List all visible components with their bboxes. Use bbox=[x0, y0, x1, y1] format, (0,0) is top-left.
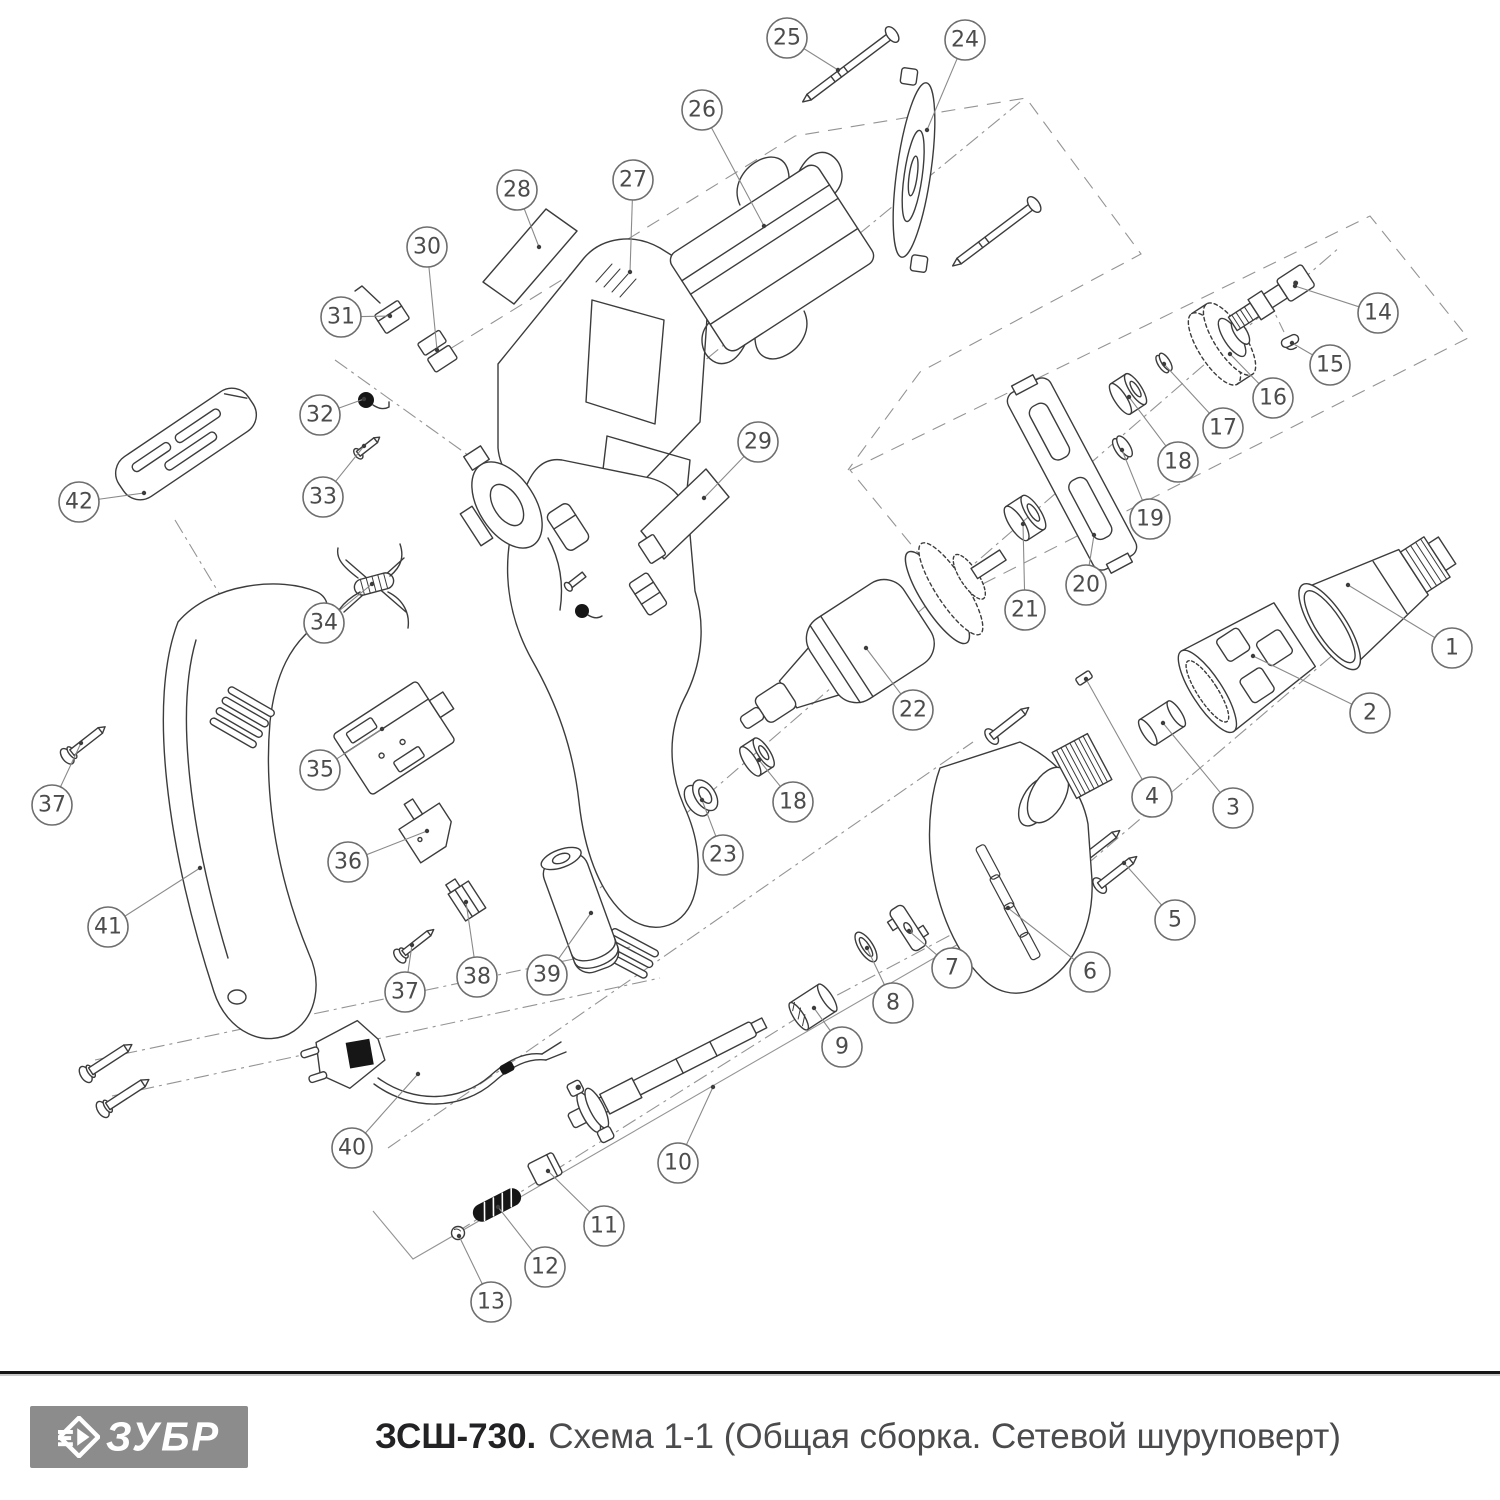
svg-text:16: 16 bbox=[1259, 386, 1287, 411]
svg-text:18: 18 bbox=[779, 790, 807, 815]
svg-text:7: 7 bbox=[945, 956, 959, 981]
svg-text:35: 35 bbox=[306, 758, 334, 783]
svg-text:34: 34 bbox=[310, 611, 338, 636]
svg-text:36: 36 bbox=[334, 850, 362, 875]
zubr-diamond-icon bbox=[58, 1416, 100, 1458]
callout-16-15: 16 bbox=[1228, 352, 1293, 418]
callout-15-14: 15 bbox=[1290, 341, 1350, 385]
exploded-diagram: 1234567891011121314151617181920212218232… bbox=[0, 0, 1500, 1500]
callout-10-9: 10 bbox=[658, 1085, 715, 1183]
callout-3-2: 3 bbox=[1161, 721, 1253, 828]
callout-37-37: 37 bbox=[32, 741, 83, 825]
svg-text:33: 33 bbox=[309, 485, 337, 510]
svg-text:37: 37 bbox=[391, 980, 419, 1005]
footer: ЗУБР ЗСШ-730. Схема 1-1 (Общая сборка. С… bbox=[0, 1376, 1500, 1500]
svg-text:6: 6 bbox=[1083, 960, 1097, 985]
part-output-shaft bbox=[1226, 264, 1316, 335]
parts-artwork bbox=[58, 24, 1475, 1239]
brand-logo: ЗУБР bbox=[30, 1406, 248, 1468]
svg-text:12: 12 bbox=[531, 1255, 559, 1280]
part-screw-37a bbox=[58, 720, 111, 767]
svg-text:2: 2 bbox=[1363, 701, 1377, 726]
part-spindle bbox=[555, 993, 779, 1152]
part-handle-cover bbox=[163, 584, 327, 1039]
callout-12-11: 12 bbox=[496, 1205, 565, 1287]
part-armature bbox=[713, 510, 1032, 769]
sheet-title: ЗСШ-730. Схема 1-1 (Общая сборка. Сетево… bbox=[375, 1406, 1341, 1468]
svg-text:27: 27 bbox=[619, 168, 647, 193]
svg-text:18: 18 bbox=[1164, 450, 1192, 475]
svg-text:23: 23 bbox=[709, 843, 737, 868]
svg-text:20: 20 bbox=[1072, 573, 1100, 598]
svg-text:42: 42 bbox=[65, 490, 93, 515]
callout-9-8: 9 bbox=[812, 1006, 862, 1067]
svg-text:28: 28 bbox=[503, 178, 531, 203]
part-screw-25b bbox=[947, 194, 1043, 273]
svg-text:4: 4 bbox=[1145, 785, 1159, 810]
svg-text:22: 22 bbox=[899, 698, 927, 723]
callout-14-13: 14 bbox=[1293, 284, 1398, 333]
svg-text:37: 37 bbox=[38, 793, 66, 818]
part-screw-25a bbox=[797, 24, 901, 109]
callout-41-42: 41 bbox=[88, 866, 202, 947]
part-bearing-18b bbox=[736, 735, 778, 779]
svg-text:25: 25 bbox=[773, 26, 801, 51]
part-washer-19 bbox=[1110, 434, 1136, 462]
svg-text:8: 8 bbox=[886, 991, 900, 1016]
callout-18-17: 18 bbox=[1127, 395, 1198, 482]
part-power-cord bbox=[296, 1016, 566, 1104]
svg-text:15: 15 bbox=[1316, 353, 1344, 378]
callout-5-4: 5 bbox=[1122, 861, 1195, 940]
callout-18-22: 18 bbox=[757, 758, 813, 822]
svg-text:1: 1 bbox=[1445, 636, 1459, 661]
part-bearing-21 bbox=[1000, 492, 1050, 544]
part-handle-screws bbox=[77, 1037, 154, 1120]
part-spring-12 bbox=[470, 1185, 525, 1225]
svg-text:40: 40 bbox=[338, 1136, 366, 1161]
part-pin-4 bbox=[1075, 670, 1093, 685]
svg-text:11: 11 bbox=[590, 1214, 618, 1239]
part-wire-tie bbox=[334, 544, 409, 628]
part-screw-33 bbox=[352, 432, 383, 460]
callout-4-3: 4 bbox=[1084, 677, 1172, 817]
svg-text:39: 39 bbox=[533, 963, 561, 988]
part-bearing-18a bbox=[1106, 371, 1151, 418]
part-clutch-sleeve bbox=[1169, 594, 1321, 739]
svg-text:41: 41 bbox=[94, 915, 122, 940]
part-clamp-38 bbox=[443, 873, 485, 920]
svg-text:31: 31 bbox=[327, 305, 355, 330]
svg-text:26: 26 bbox=[688, 98, 716, 123]
svg-text:17: 17 bbox=[1209, 416, 1237, 441]
svg-text:10: 10 bbox=[664, 1151, 692, 1176]
part-bracket-36 bbox=[389, 788, 461, 863]
svg-text:13: 13 bbox=[477, 1290, 505, 1315]
part-block-31 bbox=[355, 286, 410, 334]
part-brush-plate bbox=[874, 67, 953, 272]
svg-text:38: 38 bbox=[463, 965, 491, 990]
svg-text:5: 5 bbox=[1168, 908, 1182, 933]
svg-text:9: 9 bbox=[835, 1035, 849, 1060]
svg-text:19: 19 bbox=[1136, 507, 1164, 532]
callout-26-26: 26 bbox=[682, 90, 766, 228]
part-belt-clip bbox=[108, 380, 264, 507]
schematic-page: 1234567891011121314151617181920212218232… bbox=[0, 0, 1500, 1500]
callout-33-33: 33 bbox=[303, 444, 366, 517]
svg-text:24: 24 bbox=[951, 28, 979, 53]
svg-text:14: 14 bbox=[1364, 301, 1392, 326]
callout-29-29: 29 bbox=[702, 422, 778, 500]
sheet-subtitle: Схема 1-1 (Общая сборка. Сетевой шурупов… bbox=[548, 1417, 1341, 1457]
svg-text:30: 30 bbox=[413, 235, 441, 260]
part-screw-37b bbox=[391, 923, 438, 965]
part-switch bbox=[332, 672, 468, 796]
callout-32-32: 32 bbox=[300, 395, 366, 435]
brand-name: ЗУБР bbox=[106, 1417, 220, 1458]
callout-11-10: 11 bbox=[546, 1169, 624, 1246]
callout-25-25: 25 bbox=[767, 18, 840, 72]
svg-text:3: 3 bbox=[1226, 796, 1240, 821]
group-boundary-gear bbox=[850, 216, 1468, 598]
model-number: ЗСШ-730. bbox=[375, 1417, 536, 1457]
callout-13-12: 13 bbox=[457, 1234, 511, 1322]
callout-8-7: 8 bbox=[865, 946, 913, 1023]
svg-text:29: 29 bbox=[744, 430, 772, 455]
part-plate-7 bbox=[883, 900, 933, 956]
svg-text:32: 32 bbox=[306, 403, 334, 428]
svg-text:21: 21 bbox=[1011, 598, 1039, 623]
